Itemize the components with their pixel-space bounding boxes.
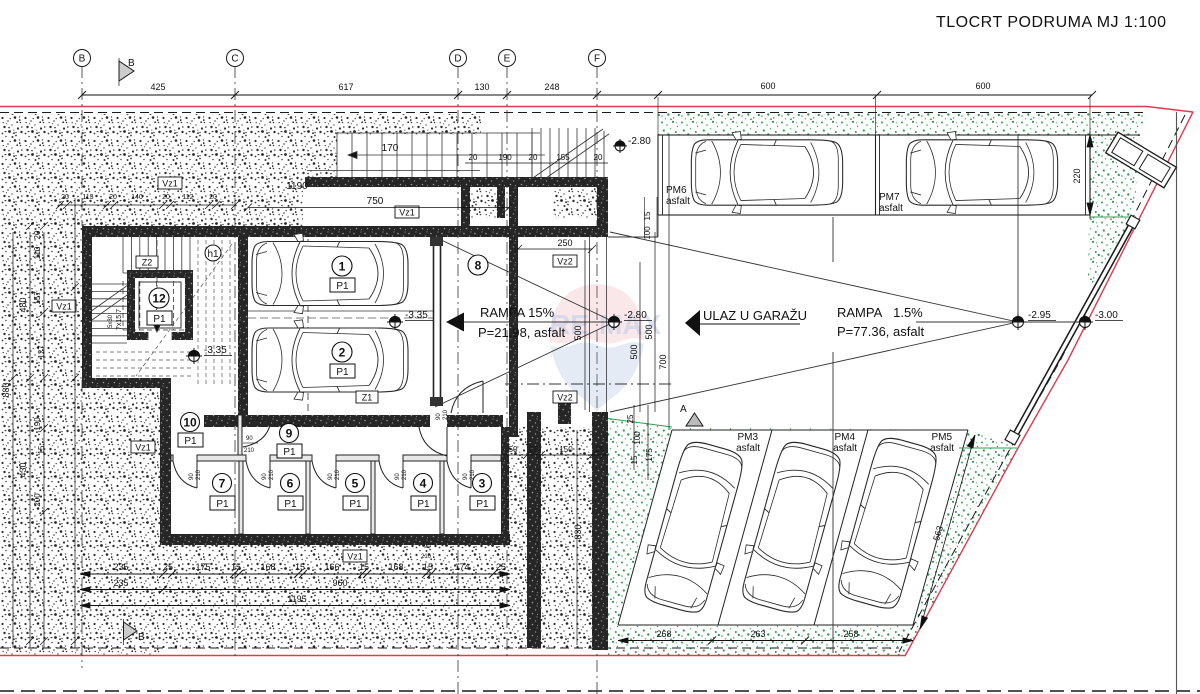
svg-text:210: 210 — [269, 469, 275, 480]
svg-text:175: 175 — [645, 448, 654, 462]
svg-text:15: 15 — [359, 562, 369, 572]
svg-text:15: 15 — [37, 445, 46, 454]
svg-text:960: 960 — [332, 578, 347, 588]
svg-text:15: 15 — [630, 455, 639, 464]
svg-text:263: 263 — [750, 629, 765, 639]
svg-text:asfalt: asfalt — [930, 443, 954, 454]
svg-text:A: A — [680, 404, 687, 415]
svg-text:25: 25 — [596, 445, 605, 454]
svg-text:10: 10 — [183, 416, 197, 430]
svg-text:B: B — [79, 54, 86, 65]
svg-text:130: 130 — [474, 82, 489, 92]
svg-text:Z2: Z2 — [142, 258, 153, 268]
svg-text:asfalt: asfalt — [833, 443, 857, 454]
svg-text:20: 20 — [529, 153, 538, 162]
svg-text:PM3: PM3 — [737, 432, 758, 443]
svg-text:asfalt: asfalt — [879, 203, 903, 214]
svg-text:P1: P1 — [336, 281, 349, 292]
svg-text:25: 25 — [626, 414, 635, 423]
svg-text:25: 25 — [530, 445, 539, 454]
svg-text:8: 8 — [475, 259, 482, 273]
svg-text:200: 200 — [33, 493, 42, 507]
svg-text:258: 258 — [843, 629, 858, 639]
svg-text:90: 90 — [246, 436, 253, 442]
svg-text:B: B — [128, 58, 135, 69]
svg-text:Z1: Z1 — [362, 393, 373, 403]
svg-text:500: 500 — [629, 344, 639, 359]
svg-text:1190: 1190 — [286, 181, 308, 192]
svg-text:210: 210 — [244, 448, 255, 454]
svg-text:190: 190 — [33, 417, 42, 431]
svg-text:112: 112 — [182, 194, 193, 201]
svg-text:2: 2 — [339, 346, 346, 360]
svg-text:1195: 1195 — [287, 594, 306, 604]
svg-text:Vz2: Vz2 — [557, 393, 573, 403]
svg-text:480: 480 — [18, 297, 28, 312]
svg-text:50: 50 — [509, 445, 518, 454]
svg-text:150: 150 — [559, 445, 573, 454]
svg-text:15: 15 — [231, 562, 241, 572]
svg-text:425: 425 — [150, 82, 165, 92]
svg-text:90: 90 — [262, 473, 268, 480]
svg-text:140: 140 — [131, 194, 143, 201]
svg-text:168: 168 — [388, 562, 403, 572]
svg-text:P1: P1 — [476, 499, 489, 510]
svg-text:P1: P1 — [216, 499, 229, 510]
svg-text:1: 1 — [339, 260, 346, 274]
svg-text:210: 210 — [443, 409, 449, 420]
svg-text:P1: P1 — [284, 499, 297, 510]
svg-text:20: 20 — [61, 194, 69, 201]
svg-text:-2.95: -2.95 — [1028, 310, 1051, 321]
svg-text:-3.00: -3.00 — [1095, 310, 1118, 321]
svg-text:190: 190 — [498, 153, 512, 162]
svg-text:235: 235 — [113, 578, 128, 588]
svg-text:168: 168 — [260, 562, 275, 572]
svg-text:90: 90 — [463, 473, 469, 480]
svg-text:F: F — [594, 54, 600, 65]
svg-text:248: 248 — [544, 82, 559, 92]
svg-text:D: D — [454, 54, 461, 65]
svg-text:B: B — [138, 632, 145, 643]
svg-text:9: 9 — [286, 427, 293, 441]
svg-text:113: 113 — [82, 194, 93, 201]
svg-text:20: 20 — [209, 194, 217, 201]
svg-text:235: 235 — [113, 562, 128, 572]
svg-text:25: 25 — [163, 562, 173, 572]
svg-text:157: 157 — [33, 291, 42, 305]
svg-text:600: 600 — [975, 81, 990, 91]
svg-text:Vz2: Vz2 — [557, 257, 573, 267]
svg-text:166: 166 — [324, 562, 339, 572]
svg-text:3: 3 — [479, 477, 486, 491]
svg-text:90: 90 — [436, 413, 442, 420]
svg-text:100: 100 — [643, 226, 652, 240]
svg-text:20: 20 — [162, 194, 170, 201]
svg-text:P1: P1 — [153, 314, 166, 325]
svg-text:5x30: 5x30 — [108, 314, 114, 328]
svg-text:155: 155 — [556, 153, 570, 162]
svg-text:90: 90 — [328, 473, 334, 480]
svg-text:250: 250 — [557, 238, 572, 248]
svg-text:P1: P1 — [417, 499, 430, 510]
svg-text:174: 174 — [454, 562, 469, 572]
svg-text:25: 25 — [496, 562, 506, 572]
svg-text:600: 600 — [760, 81, 775, 91]
svg-text:20: 20 — [109, 194, 117, 201]
svg-text:Vz1: Vz1 — [399, 208, 415, 218]
svg-text:700: 700 — [658, 354, 668, 369]
svg-text:170: 170 — [382, 143, 399, 154]
svg-text:830: 830 — [573, 524, 583, 539]
svg-text:-3.35: -3.35 — [405, 310, 428, 321]
svg-text:20: 20 — [469, 153, 478, 162]
svg-text:210: 210 — [196, 469, 202, 480]
svg-text:-2.80: -2.80 — [628, 136, 651, 147]
svg-text:RAMPA 1.5%: RAMPA 1.5% — [837, 305, 923, 320]
svg-text:-3.35: -3.35 — [204, 345, 227, 356]
svg-text:110: 110 — [33, 246, 42, 259]
svg-text:210: 210 — [402, 469, 408, 480]
svg-text:P1: P1 — [283, 447, 296, 458]
svg-text:-2.80: -2.80 — [624, 310, 647, 321]
svg-text:15: 15 — [643, 211, 652, 220]
svg-text:90: 90 — [395, 473, 401, 480]
svg-text:P1: P1 — [336, 367, 349, 378]
svg-text:Vz1: Vz1 — [56, 302, 72, 312]
svg-text:20: 20 — [594, 153, 603, 162]
svg-text:P=21,98, asfalt: P=21,98, asfalt — [478, 325, 565, 340]
svg-text:h1: h1 — [207, 249, 219, 260]
svg-text:P=77.36, asfalt: P=77.36, asfalt — [837, 324, 924, 339]
svg-text:PM5: PM5 — [931, 432, 952, 443]
svg-text:Vz1: Vz1 — [347, 552, 363, 562]
svg-text:500: 500 — [573, 325, 583, 340]
svg-text:RAMPA 15%: RAMPA 15% — [480, 305, 555, 320]
svg-text:12: 12 — [152, 292, 166, 306]
svg-text:asfalt: asfalt — [666, 196, 690, 207]
svg-text:90: 90 — [189, 473, 195, 480]
svg-text:175: 175 — [195, 562, 210, 572]
svg-text:500: 500 — [644, 324, 654, 339]
svg-text:C: C — [231, 54, 238, 65]
svg-text:750: 750 — [367, 196, 384, 207]
svg-text:PM4: PM4 — [834, 432, 855, 443]
svg-text:100: 100 — [633, 431, 642, 445]
svg-text:430: 430 — [18, 462, 28, 477]
svg-text:15: 15 — [423, 562, 433, 572]
svg-text:asfalt: asfalt — [736, 443, 760, 454]
svg-text:E: E — [504, 54, 511, 65]
svg-text:617: 617 — [338, 82, 353, 92]
svg-text:880: 880 — [1, 382, 11, 397]
svg-text:127: 127 — [37, 345, 46, 359]
svg-text:7x15,7: 7x15,7 — [116, 309, 123, 330]
svg-text:210: 210 — [335, 469, 341, 480]
svg-text:90: 90 — [424, 544, 431, 550]
svg-text:Vz1: Vz1 — [135, 443, 151, 453]
svg-text:20: 20 — [33, 230, 42, 239]
svg-text:P1: P1 — [184, 436, 197, 447]
svg-text:4: 4 — [420, 477, 427, 491]
svg-text:210: 210 — [470, 469, 476, 480]
svg-text:15: 15 — [295, 562, 305, 572]
svg-text:PM7: PM7 — [879, 192, 900, 203]
svg-text:TLOCRT PODRUMA MJ 1:100: TLOCRT PODRUMA MJ 1:100 — [936, 14, 1167, 31]
svg-text:210: 210 — [421, 554, 432, 560]
svg-text:268: 268 — [656, 629, 671, 639]
svg-text:ULAZ U GARAŽU: ULAZ U GARAŽU — [703, 308, 807, 323]
svg-text:5: 5 — [352, 477, 359, 491]
svg-text:6: 6 — [287, 477, 294, 491]
svg-text:P1: P1 — [349, 499, 362, 510]
svg-text:7: 7 — [219, 477, 226, 491]
svg-text:220: 220 — [1072, 168, 1082, 183]
svg-text:Vz1: Vz1 — [162, 179, 178, 189]
